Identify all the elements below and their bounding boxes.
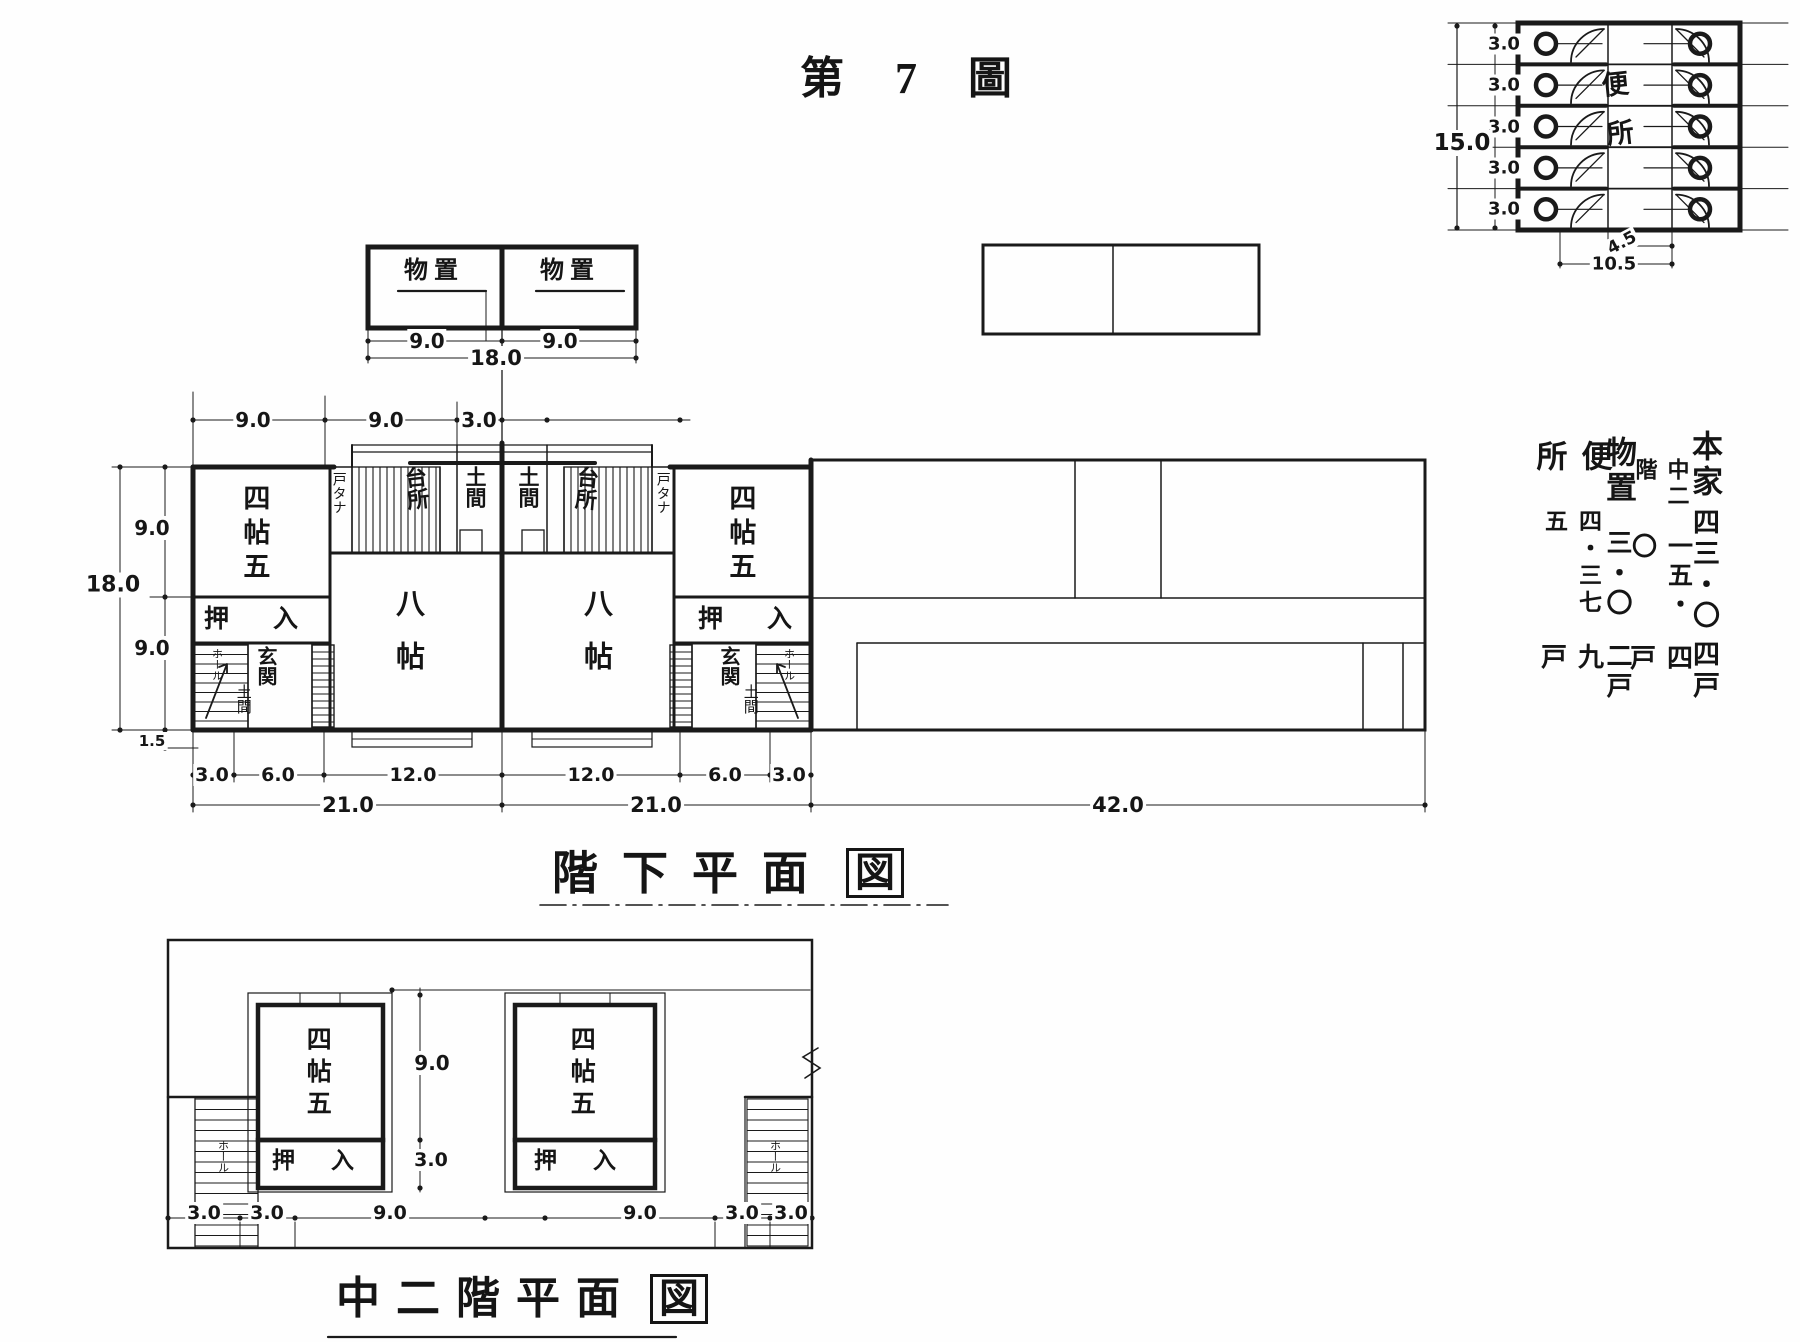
ground-dimension-lines — [112, 396, 1425, 812]
legend-col-chunikai: 中二階 一五・〇 四戸 — [1642, 458, 1679, 702]
dim-left-lower: 9.0 — [132, 636, 171, 660]
break-mark — [803, 1048, 820, 1078]
mezz-dim-b2: 3.0 — [248, 1202, 286, 1224]
kitchen-right: 台所 — [572, 465, 599, 511]
entry-right: 玄関 — [717, 646, 738, 686]
mezz-dim-b1: 3.0 — [185, 1202, 223, 1224]
room-8-right: 八帖 — [580, 588, 610, 694]
legend-benjo-name: 便所 — [1527, 440, 1617, 509]
toilet-row-dim-5: 3.0 — [1486, 199, 1522, 220]
doma-top-left: 土間 — [463, 466, 485, 508]
storage-dim-left: 9.0 — [407, 329, 446, 353]
toilet-row-dim-1: 3.0 — [1486, 34, 1522, 55]
legend-benjo-units: 九戸 — [1535, 643, 1609, 702]
storage-dim-right: 9.0 — [540, 329, 579, 353]
dim-left-upper: 9.0 — [132, 516, 171, 540]
storage-room-label-right: 物置 — [540, 258, 600, 283]
toilet-dim-width: 10.5 — [1590, 254, 1638, 275]
shelf-left: 戸タナ — [332, 472, 347, 514]
hall-right: ホール — [782, 648, 794, 681]
mezz-hall-left: ホール — [216, 1140, 228, 1173]
mezz-room-right: 四帖五 — [568, 1026, 594, 1122]
legend-monooki-value: 三・〇 — [1600, 529, 1637, 619]
legend-benjo-value: 四・三七五 — [1538, 509, 1606, 642]
figure-title: 第 7 圖 — [800, 56, 1014, 102]
mezz-dim-b3: 9.0 — [371, 1202, 409, 1224]
dim-left-offset: 1.5 — [137, 732, 168, 750]
kitchen-left: 台所 — [402, 465, 430, 511]
upper-outbuilding-rect — [983, 245, 1259, 334]
ground-caption-text: 階下平面 — [552, 849, 832, 897]
mezz-dim-b5: 3.0 — [723, 1202, 761, 1224]
mezzanine-plan-caption: 中二階平面 図 — [336, 1274, 708, 1324]
closet-left: 押入 — [204, 606, 342, 632]
ground-plan-caption: 階下平面 図 — [552, 848, 904, 898]
room-8-left: 八帖 — [392, 588, 422, 694]
mezz-dim-room: 9.0 — [412, 1051, 451, 1075]
dim-top-1: 9.0 — [233, 408, 272, 432]
dim-bottom-right: 42.0 — [1090, 793, 1146, 817]
doma-entry-right: 土間 — [742, 684, 758, 714]
legend-col-benjo: 便所 四・三七五 九戸 — [1549, 440, 1594, 702]
closet-right: 押入 — [698, 606, 836, 632]
dim-b1-1: 3.0 — [193, 764, 231, 786]
entry-left: 玄関 — [254, 646, 275, 686]
mezz-hall-right: ホール — [768, 1140, 780, 1173]
figure-7-sheet: 第 7 圖 物置 物置 9.0 9.0 18.0 便所 3.0 3.0 3.0 … — [0, 0, 1800, 1342]
toilet-row-dim-4: 3.0 — [1486, 158, 1522, 179]
doma-top-right: 土間 — [516, 466, 538, 508]
mezz-dim-closet: 3.0 — [412, 1149, 450, 1171]
storage-room-label-left: 物置 — [404, 258, 464, 283]
caption-underlines — [328, 905, 948, 1337]
dim-b1-2: 6.0 — [259, 764, 297, 786]
dim-top-3: 3.0 — [459, 408, 498, 432]
dim-left-total: 18.0 — [84, 573, 142, 598]
long-building-lines — [811, 460, 1425, 730]
mezz-caption-boxed-char: 図 — [650, 1274, 708, 1324]
mezz-closet-left: 押入 — [272, 1148, 390, 1172]
dim-b1-5: 6.0 — [706, 764, 744, 786]
toilet-dim-total: 15.0 — [1432, 130, 1493, 156]
dim-b2-2: 21.0 — [628, 793, 684, 817]
ground-caption-boxed-char: 図 — [846, 848, 904, 898]
room-4-5-left: 四帖五 — [240, 484, 268, 586]
doma-entry-left: 土間 — [235, 684, 251, 714]
shelf-right: 戸タナ — [656, 472, 671, 514]
dim-top-2: 9.0 — [366, 408, 405, 432]
toilet-row-dim-2: 3.0 — [1486, 75, 1522, 96]
dim-b2-1: 21.0 — [320, 793, 376, 817]
dim-b1-6: 3.0 — [770, 764, 808, 786]
mezz-closet-right: 押入 — [534, 1148, 652, 1172]
dim-b1-3: 12.0 — [388, 764, 439, 786]
hall-left: ホール — [210, 648, 222, 681]
mezz-caption-text: 中二階平面 — [336, 1276, 636, 1322]
storage-dim-total: 18.0 — [468, 346, 524, 370]
room-4-5-right: 四帖五 — [726, 484, 754, 586]
dim-b1-4: 12.0 — [566, 764, 617, 786]
kitchen-strip-lines — [330, 443, 674, 730]
mezz-room-left: 四帖五 — [304, 1026, 330, 1122]
mezz-dim-b4: 9.0 — [621, 1202, 659, 1224]
mezz-dim-b6: 3.0 — [772, 1202, 810, 1224]
